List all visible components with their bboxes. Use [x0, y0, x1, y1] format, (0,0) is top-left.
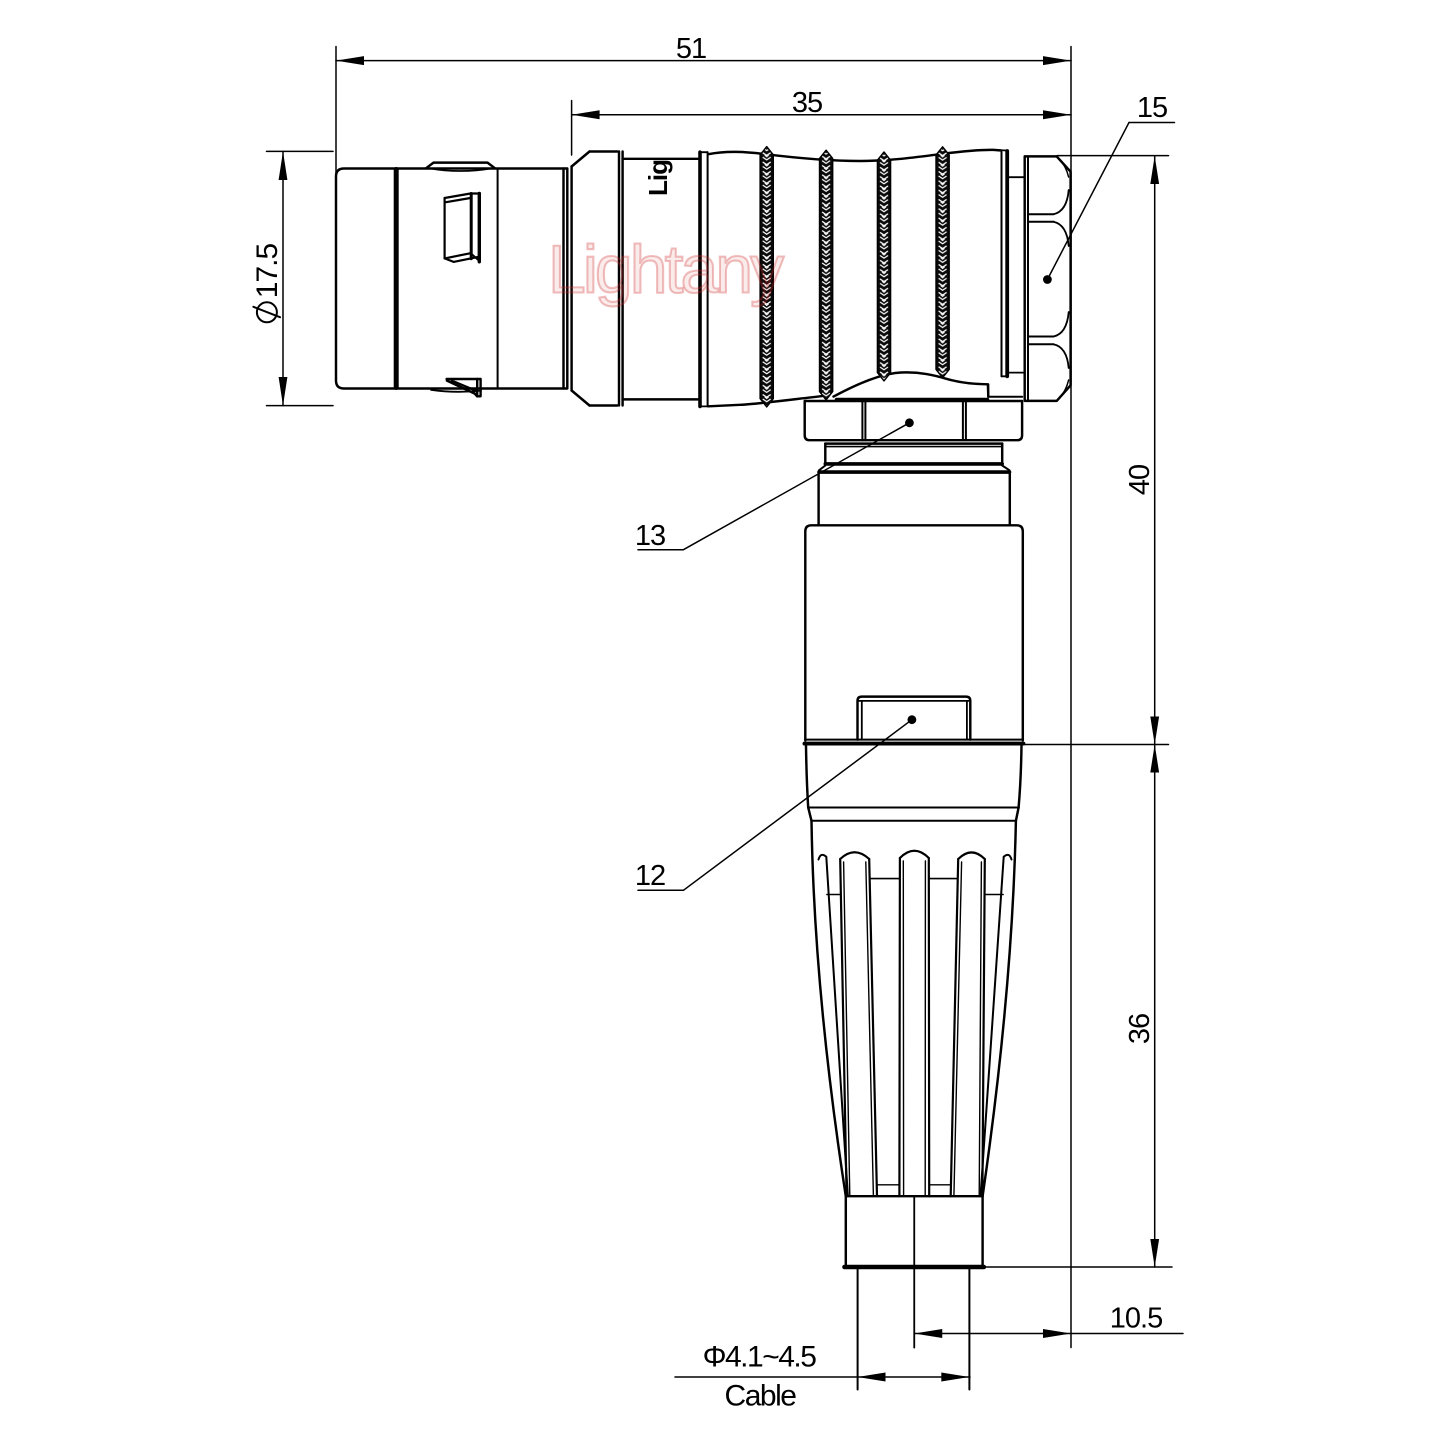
svg-text:12: 12 [635, 860, 665, 892]
svg-text:15: 15 [1137, 92, 1167, 124]
svg-text:17.5: 17.5 [251, 243, 284, 298]
svg-text:36: 36 [1124, 1014, 1156, 1044]
svg-text:10.5: 10.5 [1110, 1303, 1162, 1335]
svg-text:Cable: Cable [725, 1380, 797, 1413]
svg-text:35: 35 [792, 87, 822, 119]
svg-text:Lightany: Lightany [548, 232, 784, 308]
svg-text:13: 13 [635, 520, 665, 552]
svg-text:Φ4.1~4.5: Φ4.1~4.5 [703, 1341, 817, 1374]
svg-text:51: 51 [676, 33, 706, 65]
svg-text:40: 40 [1124, 465, 1156, 495]
svg-text:Lig: Lig [643, 160, 673, 196]
